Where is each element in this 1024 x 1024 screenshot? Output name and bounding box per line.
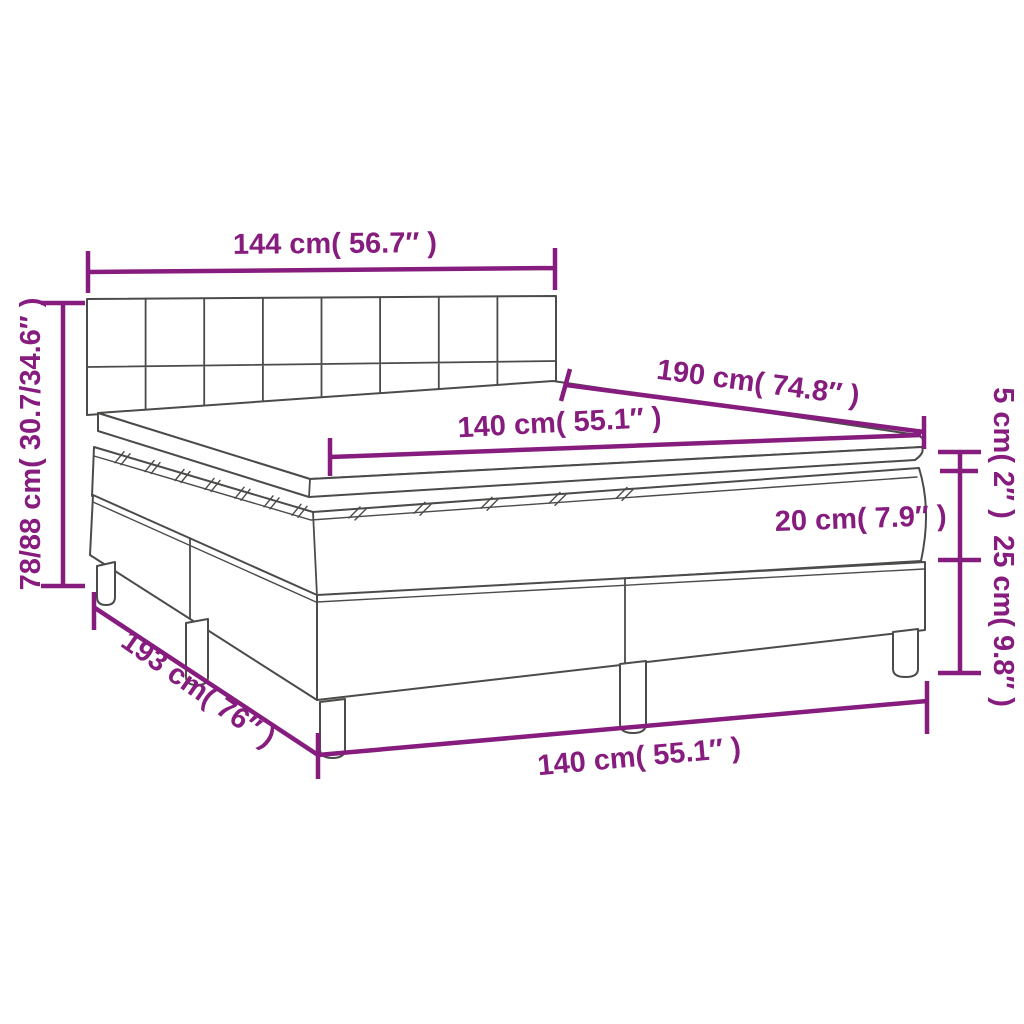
- label-base-width-bottom: 140 cm( 55.1″ ): [536, 732, 742, 782]
- label-total-height: 78/88 cm( 30.7/34.6″ ): [15, 298, 47, 591]
- label-headboard-width: 144 cm( 56.7″ ): [233, 227, 437, 261]
- dim-line: [938, 452, 981, 673]
- dim-right-heights: 5 cm( 2″ ) 25 cm( 9.8″ ): [938, 387, 1019, 707]
- label-base-height: 25 cm( 9.8″ ): [987, 535, 1019, 707]
- bed-leg: [97, 562, 115, 605]
- dim-mattress-thickness: 20 cm( 7.9″ ): [774, 500, 947, 538]
- bed-dimension-diagram: 144 cm( 56.7″ ) 78/88 cm( 30.7/34.6″ ) 1…: [0, 0, 1024, 1024]
- dim-total-height: 78/88 cm( 30.7/34.6″ ): [15, 298, 85, 591]
- bed-leg: [893, 629, 918, 677]
- label-topper-thickness: 5 cm( 2″ ): [987, 387, 1019, 519]
- label-mattress-thickness: 20 cm( 7.9″ ): [774, 500, 947, 538]
- bed-leg: [620, 661, 646, 733]
- dim-line: [41, 303, 85, 586]
- bed-leg: [320, 699, 345, 758]
- dim-headboard-width: 144 cm( 56.7″ ): [88, 227, 555, 293]
- topper-corner-seam: [309, 479, 310, 497]
- diagram-canvas: 144 cm( 56.7″ ) 78/88 cm( 30.7/34.6″ ) 1…: [0, 0, 1024, 1024]
